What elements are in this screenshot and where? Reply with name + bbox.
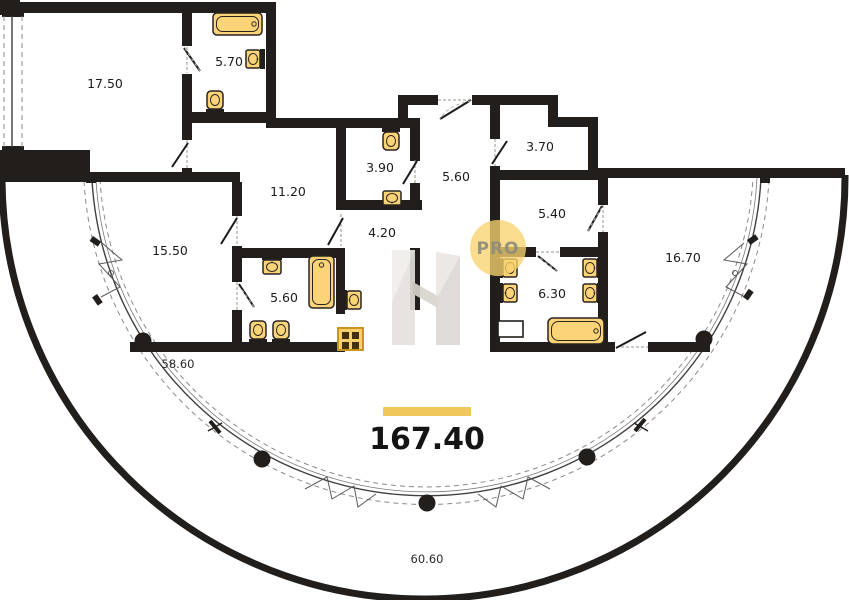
sink [262, 255, 282, 274]
room-area-label: 4.20 [368, 225, 396, 240]
total-area-accent-bar [383, 407, 471, 416]
floor-plan-drawing: PRO 17.50 5.70 11.20 3.90 5.60 3.70 5.40… [0, 0, 849, 600]
kitchen-sink [342, 290, 361, 310]
room-area-label: 11.20 [270, 184, 306, 199]
entrance-door [440, 100, 471, 119]
sink [382, 191, 402, 210]
balcony-outer-edge [2, 175, 845, 599]
room-area-label: 15.50 [152, 243, 188, 258]
h-watermark [392, 250, 460, 345]
bathtub [213, 13, 262, 35]
terrace-area-label: 58.60 [162, 357, 195, 371]
bidet [272, 321, 290, 346]
door [172, 143, 188, 167]
room-area-label: 17.50 [87, 76, 123, 91]
balcony-door [616, 332, 646, 348]
total-area-value: 167.40 [369, 422, 485, 457]
door [492, 141, 507, 164]
balcony-area-label: 60.60 [411, 552, 444, 566]
total-area: 167.40 [369, 407, 485, 457]
room-area-label: 3.70 [526, 139, 554, 154]
sink [583, 283, 602, 303]
left-facade-window [2, 12, 24, 151]
bathtub [548, 318, 604, 344]
column [254, 451, 271, 468]
bathtub [309, 256, 334, 308]
sink [246, 49, 265, 69]
sink [498, 283, 517, 303]
room-area-label: 5.60 [442, 169, 470, 184]
column [419, 495, 436, 512]
pro-badge: PRO [470, 220, 526, 276]
door [221, 218, 237, 244]
room-area-label: 5.40 [538, 206, 566, 221]
room-area-label: 5.70 [215, 54, 243, 69]
room-area-label: 6.30 [538, 286, 566, 301]
floor-plan-canvas: PRO 17.50 5.70 11.20 3.90 5.60 3.70 5.40… [0, 0, 849, 600]
room-area-label: 3.90 [366, 160, 394, 175]
sink [583, 258, 602, 278]
room-area-label: 5.60 [270, 290, 298, 305]
washing-machine [498, 321, 523, 337]
room-area-label: 16.70 [665, 250, 701, 265]
toilet [206, 91, 224, 116]
toilet [382, 125, 400, 150]
column [579, 449, 596, 466]
stove [338, 328, 363, 350]
pro-badge-text: PRO [476, 239, 519, 259]
toilet [249, 321, 267, 346]
